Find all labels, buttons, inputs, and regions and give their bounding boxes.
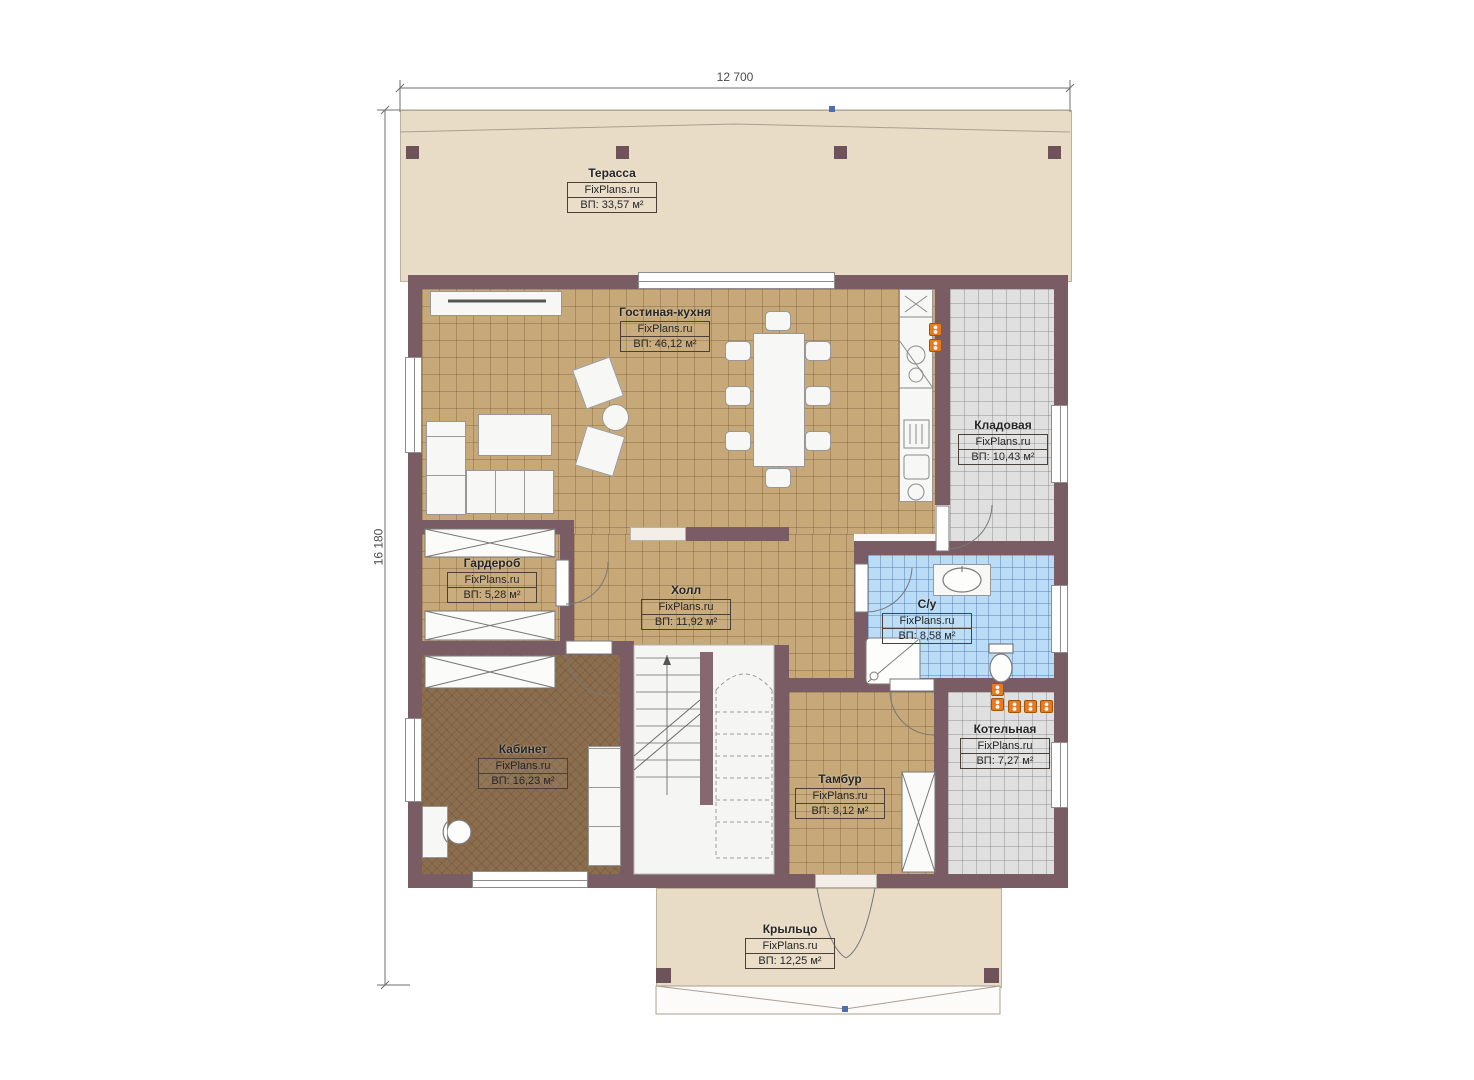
terrace-post <box>406 146 419 159</box>
area-label: ВП: 12,25 м² <box>745 954 835 969</box>
dining-chair <box>805 431 831 451</box>
brand-label: FixPlans.ru <box>447 572 537 588</box>
opening-living-hall <box>630 527 686 541</box>
room-name: Гостиная-кухня <box>619 305 711 319</box>
sofa-main-section <box>466 470 554 514</box>
room-name: Крыльцо <box>763 922 818 936</box>
radiator <box>991 683 1004 696</box>
brand-label: FixPlans.ru <box>745 938 835 954</box>
radiator <box>1024 700 1037 713</box>
room-name: Терасса <box>588 166 636 180</box>
room-name: Кладовая <box>974 418 1031 432</box>
brand-label: FixPlans.ru <box>795 788 885 804</box>
office-sofa <box>588 746 621 866</box>
room-label-living-kitchen: Гостиная-кухня FixPlans.ru ВП: 46,12 м² <box>619 305 711 352</box>
area-label: ВП: 5,28 м² <box>447 588 537 603</box>
radiator <box>929 339 942 352</box>
wall-office-stairs <box>620 641 634 874</box>
room-floor-pantry <box>950 289 1054 541</box>
area-label: ВП: 10,43 м² <box>958 450 1048 465</box>
room-label-porch: Крыльцо FixPlans.ru ВП: 12,25 м² <box>745 922 835 969</box>
dimension-top-line <box>396 80 1074 112</box>
wall-bathroom-bottom <box>789 678 1054 692</box>
wall-under-pantry <box>854 541 1054 555</box>
area-label: ВП: 7,27 м² <box>960 754 1050 769</box>
wall-hall-partial <box>686 527 789 541</box>
terrace-sliding-door <box>638 272 835 289</box>
dining-chair <box>725 341 751 361</box>
room-label-terrace: Терасса FixPlans.ru ВП: 33,57 м² <box>567 166 657 213</box>
area-label: ВП: 16,23 м² <box>478 774 568 789</box>
floor-plan-canvas: 12 700 16 180 Терасса FixPlans.ru ВП: 33… <box>0 0 1474 1080</box>
room-name: Кабинет <box>499 742 548 756</box>
terrace-post <box>616 146 629 159</box>
room-label-vestibule: Тамбур FixPlans.ru ВП: 8,12 м² <box>795 772 885 819</box>
coffee-table <box>478 414 552 456</box>
dining-chair <box>765 311 791 331</box>
dining-chair <box>805 386 831 406</box>
room-label-hall: Холл FixPlans.ru ВП: 11,92 м² <box>641 583 731 630</box>
room-label-office: Кабинет FixPlans.ru ВП: 16,23 м² <box>478 742 568 789</box>
terrace-post <box>1048 146 1061 159</box>
wall-kitchen-pantry <box>935 289 950 505</box>
area-label: ВП: 11,92 м² <box>641 615 731 630</box>
brand-label: FixPlans.ru <box>960 738 1050 754</box>
terrace-deck <box>400 110 1072 282</box>
dining-chair <box>725 386 751 406</box>
room-label-pantry: Кладовая FixPlans.ru ВП: 10,43 м² <box>958 418 1048 465</box>
window-living-left <box>405 357 422 453</box>
wall-stairs-right <box>774 645 789 874</box>
wall-wardrobe-right <box>560 534 574 641</box>
porch-post <box>984 968 999 983</box>
side-table-round <box>602 404 629 431</box>
window-pantry-right <box>1051 405 1068 483</box>
dimension-left-label: 16 180 <box>371 529 385 566</box>
area-label: ВП: 33,57 м² <box>567 198 657 213</box>
area-label: ВП: 46,12 м² <box>620 337 710 352</box>
dimension-top-label: 12 700 <box>717 70 754 84</box>
window-bathroom-right <box>1051 585 1068 653</box>
window-office-left <box>405 718 422 802</box>
wall-vestibule-boiler <box>934 692 948 874</box>
dining-chair <box>725 431 751 451</box>
kitchen-counter <box>899 289 933 502</box>
porch-post <box>656 968 671 983</box>
porch-steps <box>656 986 1000 1014</box>
room-label-boiler: Котельная FixPlans.ru ВП: 7,27 м² <box>960 722 1050 769</box>
radiator <box>991 698 1004 711</box>
radiator <box>1008 700 1021 713</box>
radiator <box>929 323 942 336</box>
room-name: Холл <box>671 583 701 597</box>
brand-label: FixPlans.ru <box>958 434 1048 450</box>
radiator <box>1040 700 1053 713</box>
dining-table <box>753 333 805 467</box>
area-label: ВП: 8,12 м² <box>795 804 885 819</box>
room-name: С/у <box>918 597 937 611</box>
dining-chair <box>805 341 831 361</box>
bathroom-vanity <box>933 564 991 596</box>
terrace-post <box>834 146 847 159</box>
area-label: ВП: 8,58 м² <box>882 629 972 644</box>
opening-entrance <box>815 874 877 888</box>
wall-bathroom-left <box>854 555 868 678</box>
brand-label: FixPlans.ru <box>882 613 972 629</box>
window-office-bottom <box>472 871 588 888</box>
dining-chair <box>765 468 791 488</box>
room-label-wardrobe: Гардероб FixPlans.ru ВП: 5,28 м² <box>447 556 537 603</box>
wall-wardrobe-office <box>408 641 634 655</box>
sofa-corner-section <box>426 421 466 515</box>
room-floor-boiler <box>948 692 1054 874</box>
brand-label: FixPlans.ru <box>620 321 710 337</box>
room-label-bathroom: С/у FixPlans.ru ВП: 8,58 м² <box>882 597 972 644</box>
room-name: Котельная <box>974 722 1037 736</box>
room-name: Тамбур <box>818 772 862 786</box>
brand-label: FixPlans.ru <box>567 182 657 198</box>
wall-living-bottom <box>408 520 574 534</box>
brand-label: FixPlans.ru <box>641 599 731 615</box>
tv-stand <box>430 291 562 316</box>
office-desk <box>422 806 448 858</box>
window-boiler-right <box>1051 742 1068 808</box>
brand-label: FixPlans.ru <box>478 758 568 774</box>
room-name: Гардероб <box>464 556 521 570</box>
